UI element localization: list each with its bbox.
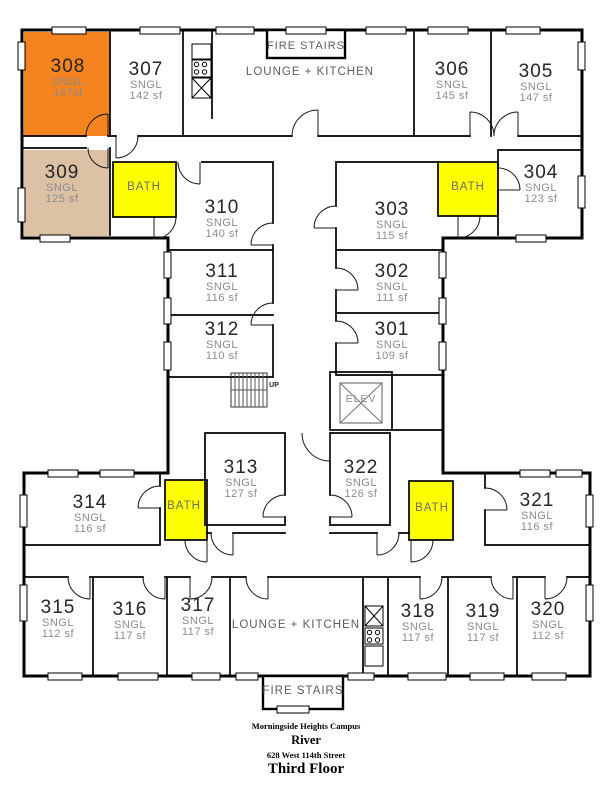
window-icon (18, 188, 25, 222)
floor-plan-page: 301SNGL109 sf302SNGL111 sf303SNGL115 sf3… (0, 0, 612, 792)
window-icon (439, 298, 446, 324)
window-icon (52, 27, 86, 34)
floor-title: Third Floor (0, 761, 612, 778)
window-icon (140, 27, 180, 34)
window-icon (408, 673, 446, 680)
window-icon (532, 673, 566, 680)
room-308-highlight (24, 32, 110, 136)
window-icon (439, 252, 446, 278)
elevator-icon (330, 372, 392, 430)
title-block: Morningside Heights Campus River 628 Wes… (0, 721, 612, 778)
window-icon (20, 495, 27, 527)
window-icon (578, 176, 585, 208)
bath-room-top-left (113, 162, 176, 217)
window-icon (48, 673, 82, 680)
floor-plan-drawing (0, 0, 612, 792)
window-icon (556, 470, 582, 477)
kitchen-appliances-bottom-icon (365, 606, 383, 666)
window-icon (164, 252, 171, 278)
window-icon (439, 342, 446, 370)
window-icon (40, 235, 70, 242)
campus-name: Morningside Heights Campus (0, 721, 612, 731)
window-icon (520, 470, 550, 477)
window-icon (578, 42, 585, 70)
window-icon (18, 42, 25, 70)
window-icon (48, 470, 78, 477)
room-309-highlight (24, 150, 110, 236)
bath-room-bottom-right (409, 481, 453, 540)
window-icon (586, 495, 593, 527)
window-icon (277, 706, 309, 713)
window-icon (20, 585, 27, 621)
window-icon (164, 298, 171, 324)
window-icon (586, 585, 593, 621)
window-icon (286, 27, 326, 34)
window-icon (428, 27, 468, 34)
window-icon (348, 673, 374, 680)
window-icon (236, 673, 258, 680)
window-icon (516, 235, 546, 242)
bath-room-top-right (438, 162, 498, 216)
window-icon (100, 470, 134, 477)
window-icon (192, 673, 220, 680)
window-icon (164, 342, 171, 370)
kitchen-appliances-top-icon (192, 44, 211, 98)
window-icon (216, 27, 254, 34)
fire-stairs-box-bottom (263, 676, 343, 709)
bath-room-bottom-left (165, 480, 207, 540)
window-icon (470, 673, 504, 680)
building-name: River (0, 733, 612, 748)
window-icon (366, 27, 406, 34)
window-icon (118, 673, 158, 680)
building-address: 628 West 114th Street (0, 750, 612, 760)
stairs-icon (231, 373, 267, 407)
window-icon (506, 27, 540, 34)
